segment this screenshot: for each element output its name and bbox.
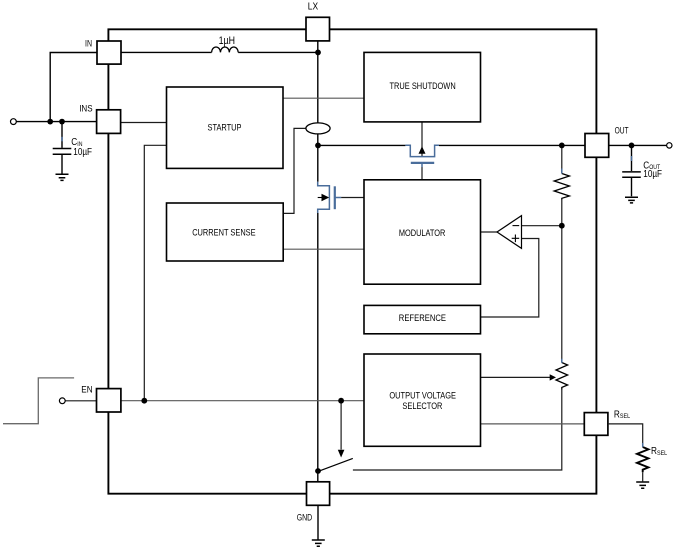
svg-text:CURRENT SENSE: CURRENT SENSE [192, 228, 255, 238]
svg-text:GND: GND [297, 512, 313, 522]
svg-text:OUTPUT VOLTAGE: OUTPUT VOLTAGE [389, 391, 456, 401]
svg-text:INS: INS [79, 104, 92, 114]
svg-text:STARTUP: STARTUP [208, 122, 242, 132]
svg-text:MODULATOR: MODULATOR [399, 228, 446, 238]
svg-text:SELECTOR: SELECTOR [402, 401, 442, 411]
svg-text:1µH: 1µH [219, 35, 235, 47]
svg-text:LX: LX [308, 0, 319, 12]
svg-text:10µF: 10µF [643, 168, 662, 179]
svg-text:EN: EN [81, 385, 92, 395]
svg-text:10µF: 10µF [73, 146, 92, 157]
svg-text:REFERENCE: REFERENCE [399, 313, 446, 323]
svg-text:IN: IN [85, 39, 92, 49]
svg-text:TRUE SHUTDOWN: TRUE SHUTDOWN [390, 81, 456, 91]
svg-text:OUT: OUT [615, 126, 629, 136]
